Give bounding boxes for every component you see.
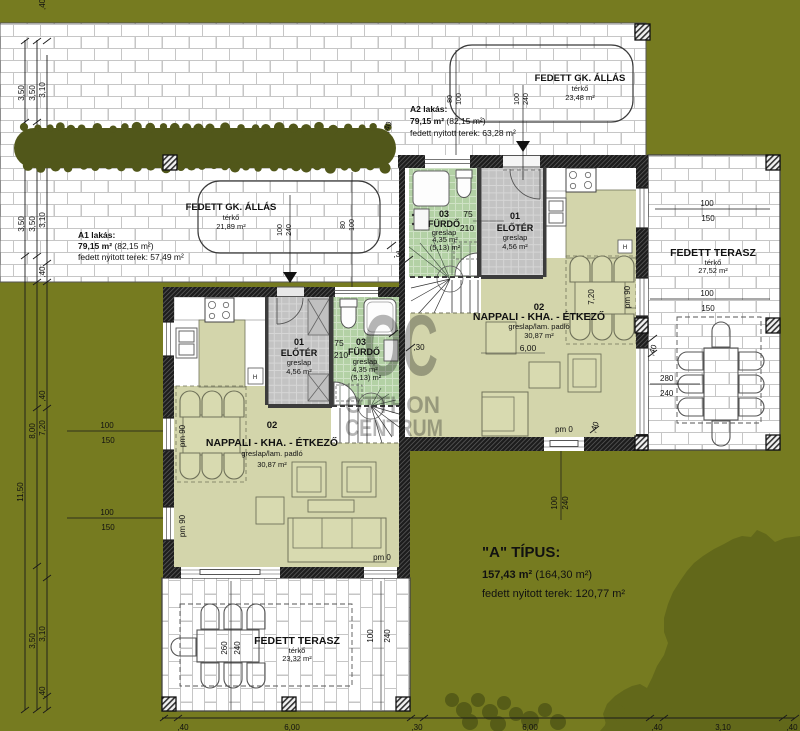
svg-text:greslap/lam. padló: greslap/lam. padló	[508, 322, 569, 331]
svg-text:A1 lakás:: A1 lakás:	[78, 230, 115, 240]
svg-text:100: 100	[277, 224, 284, 236]
svg-text:,40: ,40	[177, 723, 189, 731]
svg-text:210: 210	[460, 223, 474, 233]
svg-text:6,00: 6,00	[284, 723, 300, 731]
svg-text:240: 240	[561, 496, 570, 510]
svg-text:ELŐTÉR: ELŐTÉR	[281, 347, 318, 358]
svg-text:79,15 m² (82,15 m²): 79,15 m² (82,15 m²)	[78, 241, 154, 251]
svg-text:157,43 m² (164,30 m²): 157,43 m² (164,30 m²)	[482, 569, 592, 581]
svg-text:280: 280	[660, 374, 674, 383]
svg-text:NAPPALI - KHA. - ÉTKEZŐ: NAPPALI - KHA. - ÉTKEZŐ	[206, 436, 338, 449]
svg-text:CENTRUM: CENTRUM	[345, 415, 443, 442]
svg-text:75: 75	[334, 338, 344, 348]
svg-text:11,50: 11,50	[16, 482, 25, 502]
svg-text:H: H	[253, 375, 257, 381]
svg-text:3,50: 3,50	[28, 633, 37, 649]
svg-text:100: 100	[700, 289, 714, 298]
svg-text:100: 100	[100, 421, 114, 430]
svg-text:pm 90: pm 90	[623, 285, 632, 308]
svg-text:,40: ,40	[38, 266, 47, 278]
svg-text:3,10: 3,10	[38, 82, 47, 98]
svg-text:100: 100	[100, 508, 114, 517]
svg-text:3,10: 3,10	[38, 626, 47, 642]
svg-text:greslap: greslap	[287, 358, 312, 367]
svg-text:,40: ,40	[38, 0, 47, 10]
svg-text:ELŐTÉR: ELŐTÉR	[497, 222, 534, 233]
svg-text:(5,13) m²: (5,13) m²	[351, 373, 382, 382]
svg-text:100: 100	[366, 629, 375, 643]
svg-text:150: 150	[101, 523, 115, 532]
svg-text:pm 0: pm 0	[555, 425, 573, 434]
svg-text:240: 240	[383, 629, 392, 643]
svg-text:pm 90: pm 90	[178, 424, 187, 447]
svg-text:30,87 m²: 30,87 m²	[524, 331, 554, 340]
svg-text:,40: ,40	[38, 390, 47, 402]
svg-text:fedett nyitott terek: 57,49 m²: fedett nyitott terek: 57,49 m²	[78, 252, 184, 262]
svg-text:6,00: 6,00	[522, 723, 538, 731]
svg-text:30,87 m²: 30,87 m²	[257, 460, 287, 469]
svg-text:3,50: 3,50	[17, 85, 26, 101]
svg-text:01: 01	[510, 211, 520, 221]
svg-text:3,50: 3,50	[28, 85, 37, 101]
svg-text:8,00: 8,00	[28, 423, 37, 439]
svg-text:FEDETT GK. ÁLLÁS: FEDETT GK. ÁLLÁS	[186, 202, 277, 213]
svg-text:240: 240	[233, 641, 242, 655]
svg-text:150: 150	[101, 436, 115, 445]
svg-text:,40: ,40	[651, 723, 663, 731]
svg-text:80: 80	[447, 95, 454, 103]
svg-text:"A" TÍPUS:: "A" TÍPUS:	[482, 544, 560, 561]
svg-text:A2 lakás:: A2 lakás:	[410, 104, 447, 114]
svg-text:,30: ,30	[393, 250, 405, 259]
svg-text:03: 03	[439, 209, 449, 219]
svg-text:pm 90: pm 90	[178, 514, 187, 537]
svg-text:7,20: 7,20	[587, 289, 596, 305]
svg-text:3,10: 3,10	[38, 212, 47, 228]
svg-text:100: 100	[550, 496, 559, 510]
svg-text:greslap: greslap	[503, 233, 528, 242]
svg-text:greslap/lam. padló: greslap/lam. padló	[241, 449, 302, 458]
svg-text:23,32 m²: 23,32 m²	[282, 654, 312, 663]
svg-text:6,00: 6,00	[520, 343, 537, 353]
svg-text:4,56 m²: 4,56 m²	[286, 367, 312, 376]
svg-text:térkő: térkő	[223, 213, 240, 222]
svg-text:100: 100	[456, 93, 463, 105]
svg-text:240: 240	[286, 224, 293, 236]
svg-text:fedett nyitott terek: 120,77 m: fedett nyitott terek: 120,77 m²	[482, 588, 625, 600]
svg-text:(5,13) m²: (5,13) m²	[430, 243, 461, 252]
svg-text:7,20: 7,20	[38, 420, 47, 436]
svg-text:3,50: 3,50	[17, 216, 26, 232]
svg-text:27,52 m²: 27,52 m²	[698, 266, 728, 275]
svg-text:100: 100	[514, 93, 521, 105]
svg-text:100: 100	[700, 199, 714, 208]
svg-text:210: 210	[334, 350, 348, 360]
svg-text:01: 01	[294, 337, 304, 347]
svg-text:21,89 m²: 21,89 m²	[216, 222, 246, 231]
svg-text:pm 0: pm 0	[373, 553, 391, 562]
svg-text:240: 240	[523, 93, 530, 105]
svg-text:,40: ,40	[786, 723, 798, 731]
svg-text:79,15 m² (82,15 m²): 79,15 m² (82,15 m²)	[410, 116, 486, 126]
svg-text:260: 260	[220, 641, 229, 655]
svg-text:FEDETT GK. ÁLLÁS: FEDETT GK. ÁLLÁS	[535, 73, 626, 84]
svg-text:150: 150	[701, 214, 715, 223]
svg-text:23,48 m²: 23,48 m²	[565, 93, 595, 102]
svg-text:FÜRDŐ: FÜRDŐ	[348, 346, 380, 357]
svg-text:75: 75	[463, 209, 473, 219]
svg-text:240: 240	[660, 389, 674, 398]
svg-text:,30: ,30	[411, 723, 423, 731]
svg-text:80: 80	[340, 221, 347, 229]
svg-text:3,50: 3,50	[28, 216, 37, 232]
svg-text:fedett nyitott terek: 63,28 m²: fedett nyitott terek: 63,28 m²	[410, 128, 516, 138]
svg-text:3,10: 3,10	[715, 723, 731, 731]
svg-text:100: 100	[349, 219, 356, 231]
svg-text:02: 02	[267, 420, 278, 431]
svg-text:H: H	[623, 245, 627, 251]
svg-text:03: 03	[356, 337, 366, 347]
svg-text:,40: ,40	[38, 686, 47, 698]
svg-text:4,56 m²: 4,56 m²	[502, 242, 528, 251]
svg-text:térkő: térkő	[572, 84, 589, 93]
svg-text:150: 150	[701, 304, 715, 313]
